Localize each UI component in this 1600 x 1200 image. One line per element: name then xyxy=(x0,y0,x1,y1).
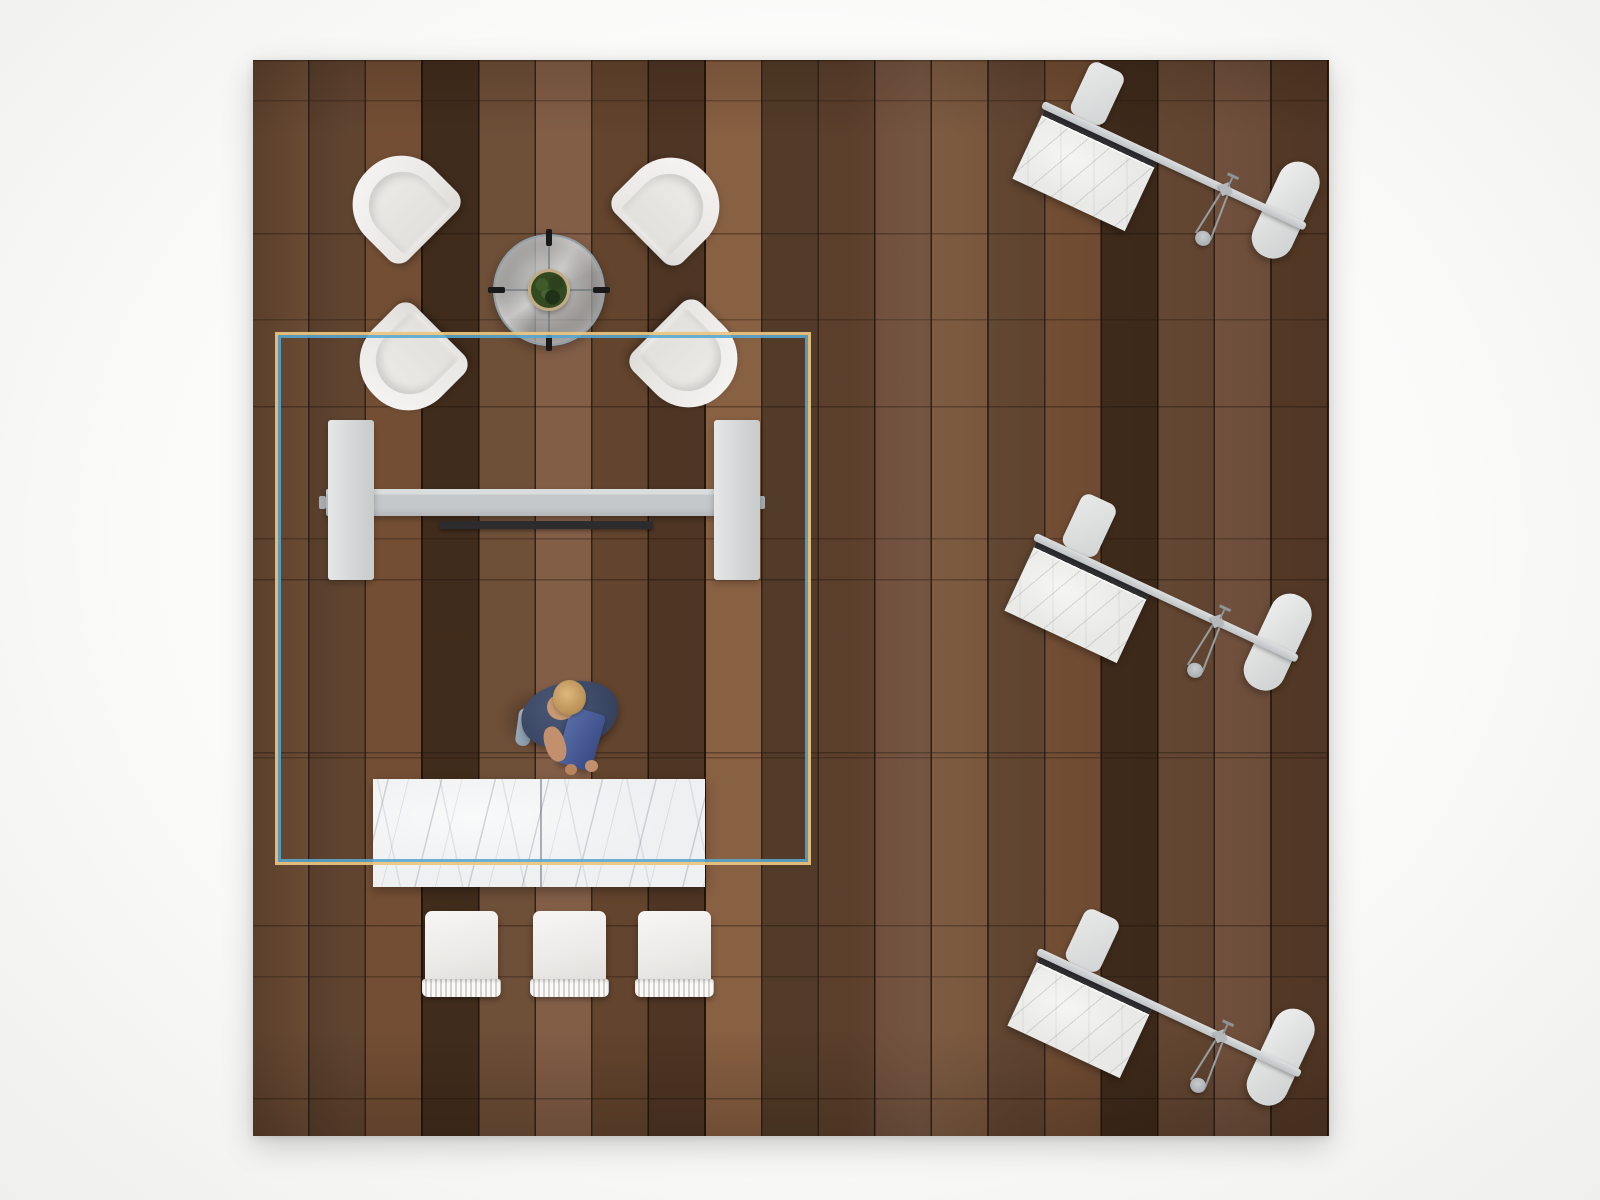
stool-fringe xyxy=(422,979,501,997)
table-tick-east xyxy=(593,287,610,293)
stool-fringe xyxy=(530,979,609,997)
counter-stool-3 xyxy=(638,911,711,983)
render-canvas: { "scene": { "type": "top-down 3D interi… xyxy=(0,0,1600,1200)
glass-wall-enclosure xyxy=(278,335,808,862)
stool-fringe xyxy=(635,979,714,997)
table-tick-north xyxy=(546,229,552,246)
potted-plant xyxy=(531,272,567,308)
counter-stool-1 xyxy=(425,911,498,983)
plant-pot xyxy=(528,269,570,311)
counter-stool-2 xyxy=(533,911,606,983)
table-tick-west xyxy=(488,287,505,293)
glass-coffee-table xyxy=(493,234,605,346)
